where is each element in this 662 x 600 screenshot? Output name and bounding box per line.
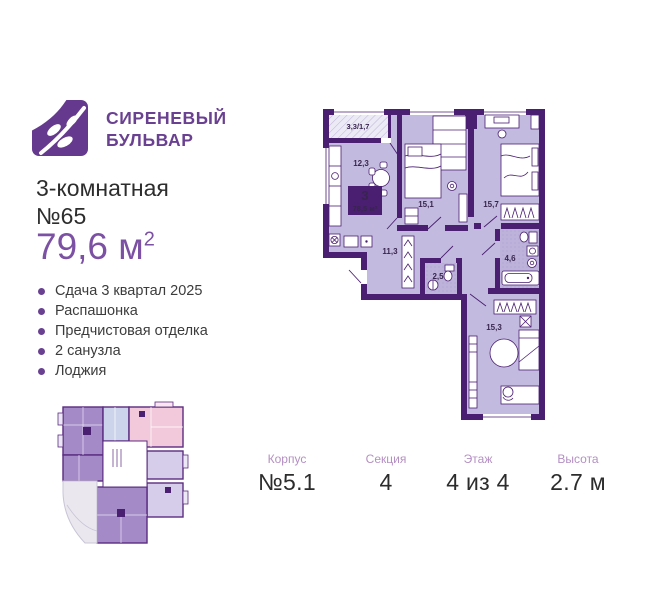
brand-name: СИРЕНЕВЫЙ БУЛЬВАР (106, 107, 227, 151)
room-label-bedroom-left: 15,1 (418, 200, 434, 209)
bullet-icon (38, 288, 45, 295)
room-label-bedroom-right: 15,7 (483, 200, 499, 209)
room-label-hallway: 11,3 (382, 247, 398, 256)
footer-col-building: Корпус №5.1 (237, 452, 337, 496)
bullet-icon (38, 348, 45, 355)
bullet-icon (38, 368, 45, 375)
mini-plan-units (58, 402, 188, 543)
feature-item: Сдача 3 квартал 2025 (38, 284, 208, 298)
apartment-title: 3-комнатная №65 (36, 174, 169, 230)
apartment-area: 79,6 м2 (36, 226, 155, 268)
brand-name-line2: БУЛЬВАР (106, 129, 227, 151)
brand-logo (32, 100, 88, 156)
footer-col-height: Высота 2.7 м (528, 452, 628, 496)
footer-value: 2.7 м (528, 469, 628, 496)
area-value: 79,6 м (36, 226, 144, 267)
feature-text: Предчистовая отделка (55, 323, 208, 339)
footer-value: 4 (336, 469, 436, 496)
brand-name-line1: СИРЕНЕВЫЙ (106, 107, 227, 129)
footer-col-floor: Этаж 4 из 4 (428, 452, 528, 496)
footer-label: Секция (336, 452, 436, 466)
room-label-wc: 2,5 (432, 272, 444, 281)
footer-label: Этаж (428, 452, 528, 466)
feature-text: Лоджия (55, 363, 106, 379)
badge-rooms-count: 3 (361, 188, 368, 203)
footer-label: Высота (528, 452, 628, 466)
area-superscript: 2 (144, 229, 155, 251)
room-label-kitchen: 12,3 (353, 159, 369, 168)
feature-item: Лоджия (38, 364, 208, 378)
feature-text: 2 санузла (55, 343, 121, 359)
apartment-type: 3-комнатная (36, 174, 169, 202)
feature-text: Сдача 3 квартал 2025 (55, 283, 202, 299)
feature-item: Предчистовая отделка (38, 324, 208, 338)
badge-area: 78,5 м² (353, 204, 378, 213)
room-label-balcony: 3,3/1,7 (347, 122, 370, 131)
floor-plan: 3,3/1,7 12,3 15,1 15,7 11,3 2,5 4,6 15,3… (298, 86, 563, 434)
bullet-icon (38, 328, 45, 335)
listing-flyer: СИРЕНЕВЫЙ БУЛЬВАР 3-комнатная №65 79,6 м… (0, 0, 662, 600)
footer-col-section: Секция 4 (336, 452, 436, 496)
feature-item: 2 санузла (38, 344, 208, 358)
bullet-icon (38, 308, 45, 315)
room-label-bathroom: 4,6 (504, 254, 516, 263)
feature-item: Распашонка (38, 304, 208, 318)
building-mini-plan (55, 393, 195, 575)
footer-value: №5.1 (237, 469, 337, 496)
feature-text: Распашонка (55, 303, 138, 319)
room-label-living: 15,3 (486, 323, 502, 332)
footer-label: Корпус (237, 452, 337, 466)
leaf-icon (32, 100, 88, 156)
footer-value: 4 из 4 (428, 469, 528, 496)
features-list: Сдача 3 квартал 2025 Распашонка Предчист… (38, 284, 208, 384)
plan-badge: 3 78,5 м² (348, 186, 382, 215)
